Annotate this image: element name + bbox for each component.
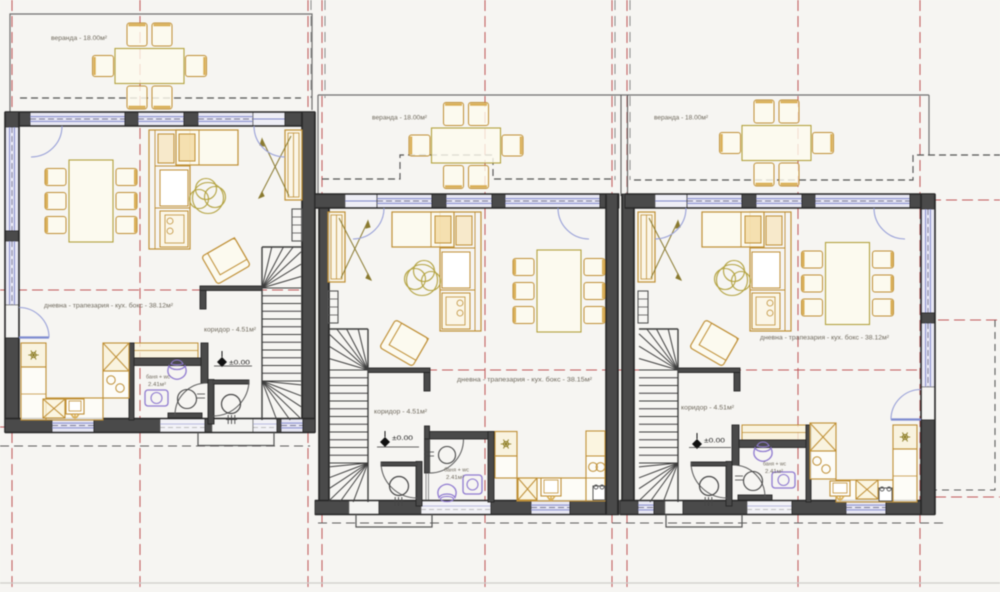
svg-text:±0.00: ±0.00 (704, 439, 726, 445)
svg-text:баня + wc: баня + wc (763, 462, 786, 468)
svg-text:дневна - трапезария - кух. бок: дневна - трапезария - кух. бокс - 38.12м… (44, 304, 173, 310)
svg-text:±0.00: ±0.00 (392, 436, 414, 442)
svg-text:коридор - 4.51м²: коридор - 4.51м² (374, 410, 427, 416)
svg-text:коридор - 4.51м²: коридор - 4.51м² (681, 406, 734, 412)
svg-text:2.41м²: 2.41м² (446, 475, 464, 481)
svg-text:коридор - 4.51м²: коридор - 4.51м² (204, 328, 256, 334)
svg-text:дневна - трапезария - кух. бок: дневна - трапезария - кух. бокс - 38.15м… (457, 378, 592, 384)
svg-text:2.41м²: 2.41м² (765, 469, 783, 475)
svg-text:веранда - 18.00м²: веранда - 18.00м² (654, 116, 708, 122)
svg-text:дневна - трапезария - кух. бок: дневна - трапезария - кух. бокс - 38.12м… (760, 336, 889, 342)
svg-text:веранда - 18.00м²: веранда - 18.00м² (372, 116, 427, 122)
svg-text:веранда - 18.00м²: веранда - 18.00м² (51, 36, 107, 42)
svg-text:баня + wc: баня + wc (444, 468, 469, 474)
svg-text:2.41м²: 2.41м² (148, 382, 166, 388)
svg-text:баня + wc: баня + wc (146, 375, 170, 381)
